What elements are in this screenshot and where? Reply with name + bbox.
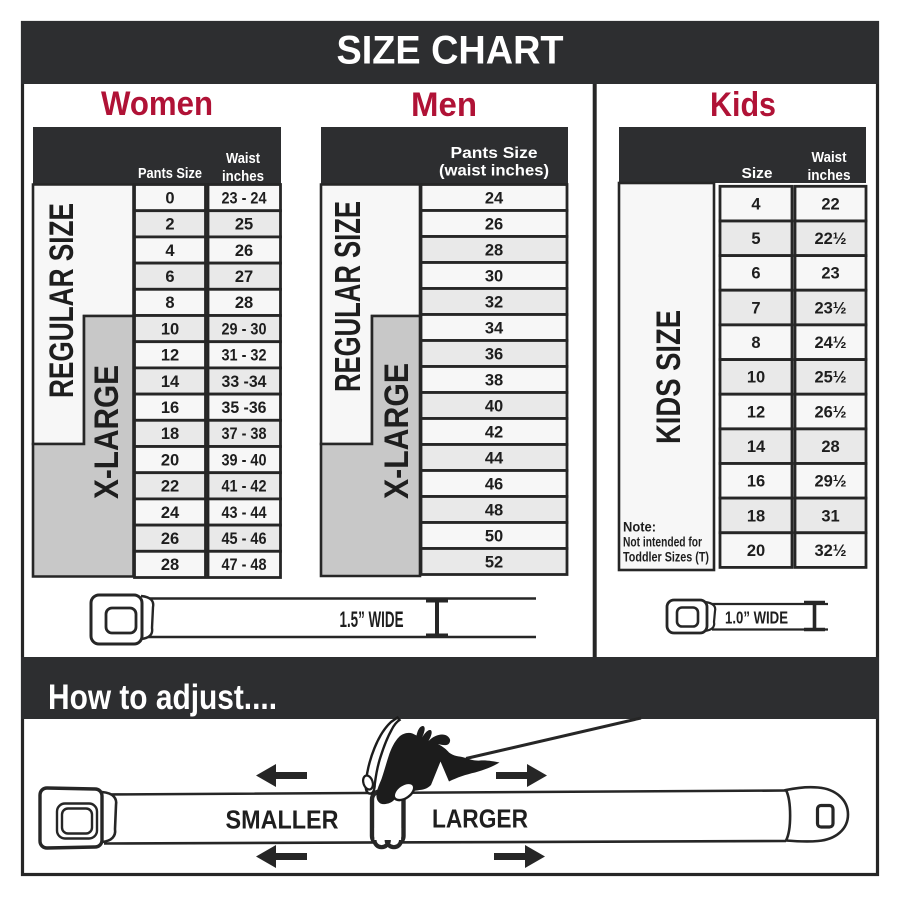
svg-text:(waist inches): (waist inches)	[439, 163, 549, 180]
svg-text:28: 28	[485, 241, 503, 259]
svg-text:18: 18	[747, 507, 765, 525]
svg-text:Toddler Sizes (T): Toddler Sizes (T)	[623, 550, 709, 565]
svg-text:Not intended for: Not intended for	[623, 535, 703, 550]
svg-text:28: 28	[821, 438, 839, 456]
svg-text:Waist: Waist	[226, 150, 260, 167]
svg-text:34: 34	[485, 319, 504, 337]
svg-text:35 -36: 35 -36	[222, 399, 267, 417]
svg-text:16: 16	[747, 473, 765, 491]
svg-text:27: 27	[235, 268, 253, 286]
svg-text:7: 7	[751, 299, 760, 317]
svg-text:SMALLER: SMALLER	[226, 805, 339, 835]
svg-text:29 - 30: 29 - 30	[222, 320, 267, 338]
svg-text:2: 2	[165, 216, 174, 234]
svg-text:32: 32	[485, 293, 503, 311]
svg-text:47 - 48: 47 - 48	[222, 556, 267, 574]
svg-text:38: 38	[485, 371, 503, 389]
svg-text:6: 6	[751, 265, 760, 283]
svg-text:48: 48	[485, 501, 503, 519]
svg-text:36: 36	[485, 345, 503, 363]
svg-text:20: 20	[747, 542, 765, 560]
svg-text:LARGER: LARGER	[432, 804, 528, 834]
svg-text:26: 26	[161, 530, 179, 548]
svg-text:Women: Women	[101, 85, 213, 123]
svg-text:Pants Size: Pants Size	[451, 145, 538, 162]
svg-text:24½: 24½	[814, 334, 846, 352]
svg-text:8: 8	[751, 334, 760, 352]
svg-text:4: 4	[751, 195, 761, 213]
svg-text:52: 52	[485, 553, 503, 571]
svg-text:5: 5	[751, 230, 760, 248]
svg-text:X-LARGE: X-LARGE	[88, 365, 126, 499]
svg-text:20: 20	[161, 451, 179, 469]
svg-text:28: 28	[161, 556, 179, 574]
svg-text:23 - 24: 23 - 24	[222, 189, 268, 207]
svg-text:31: 31	[821, 507, 839, 525]
svg-text:28: 28	[235, 294, 253, 312]
svg-text:Pants Size: Pants Size	[138, 165, 202, 182]
svg-text:30: 30	[485, 267, 503, 285]
svg-text:37 - 38: 37 - 38	[222, 425, 267, 443]
svg-text:24: 24	[161, 504, 180, 522]
svg-text:How to adjust....: How to adjust....	[48, 678, 277, 717]
svg-text:41 - 42: 41 - 42	[222, 478, 267, 496]
svg-text:Waist: Waist	[812, 149, 847, 166]
svg-text:22: 22	[821, 195, 839, 213]
svg-text:X-LARGE: X-LARGE	[378, 363, 416, 499]
svg-text:10: 10	[161, 320, 179, 338]
svg-text:24: 24	[485, 189, 504, 207]
svg-text:16: 16	[161, 399, 179, 417]
svg-text:25½: 25½	[814, 369, 846, 387]
svg-text:22½: 22½	[814, 230, 846, 248]
svg-text:1.0” WIDE: 1.0” WIDE	[725, 608, 788, 628]
svg-text:inches: inches	[808, 167, 851, 184]
svg-text:32½: 32½	[814, 542, 846, 560]
svg-text:Men: Men	[411, 86, 477, 124]
svg-text:Kids: Kids	[710, 86, 776, 124]
svg-text:23: 23	[821, 265, 839, 283]
svg-text:42: 42	[485, 423, 503, 441]
svg-text:6: 6	[165, 268, 174, 286]
svg-text:4: 4	[165, 242, 175, 260]
svg-text:23½: 23½	[814, 299, 846, 317]
svg-text:KIDS SIZE: KIDS SIZE	[650, 310, 688, 444]
svg-text:29½: 29½	[814, 473, 846, 491]
svg-text:45 - 46: 45 - 46	[222, 530, 267, 548]
svg-text:8: 8	[165, 294, 174, 312]
svg-text:SIZE CHART: SIZE CHART	[337, 29, 564, 73]
svg-text:26: 26	[485, 215, 503, 233]
svg-text:12: 12	[161, 347, 179, 365]
svg-text:43 - 44: 43 - 44	[222, 504, 268, 522]
svg-text:25: 25	[235, 216, 253, 234]
svg-text:0: 0	[165, 189, 174, 207]
svg-text:46: 46	[485, 475, 503, 493]
svg-text:18: 18	[161, 425, 179, 443]
svg-text:12: 12	[747, 403, 765, 421]
svg-text:26½: 26½	[814, 403, 846, 421]
svg-text:39 - 40: 39 - 40	[222, 451, 267, 469]
svg-text:inches: inches	[222, 168, 264, 185]
svg-text:22: 22	[161, 478, 179, 496]
svg-text:REGULAR SIZE: REGULAR SIZE	[327, 201, 368, 392]
svg-text:33 -34: 33 -34	[222, 373, 268, 391]
svg-text:14: 14	[747, 438, 766, 456]
svg-text:Size: Size	[742, 165, 773, 182]
svg-text:50: 50	[485, 527, 503, 545]
svg-text:1.5” WIDE: 1.5” WIDE	[340, 607, 404, 632]
svg-text:REGULAR SIZE: REGULAR SIZE	[43, 203, 81, 398]
svg-text:14: 14	[161, 373, 180, 391]
svg-text:Note:: Note:	[623, 520, 656, 535]
svg-text:44: 44	[485, 449, 504, 467]
svg-text:31 - 32: 31 - 32	[222, 347, 267, 365]
svg-text:26: 26	[235, 242, 253, 260]
svg-text:40: 40	[485, 397, 503, 415]
svg-text:10: 10	[747, 369, 765, 387]
